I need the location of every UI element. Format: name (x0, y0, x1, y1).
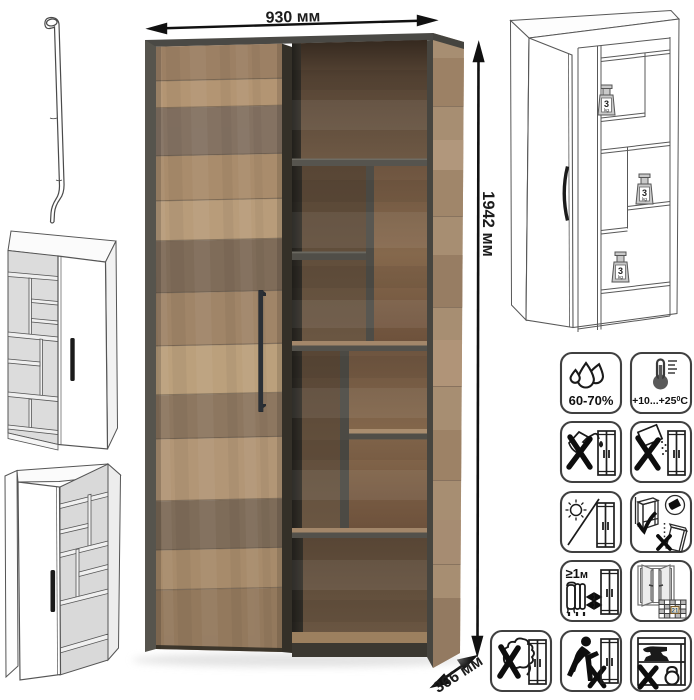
svg-text:60-70%: 60-70% (569, 393, 614, 408)
svg-text:930 мм: 930 мм (265, 8, 320, 27)
svg-text:≥1м: ≥1м (566, 566, 589, 581)
svg-text:1942 мм: 1942 мм (479, 191, 497, 257)
svg-text:kg: kg (642, 197, 647, 202)
svg-text:kg: kg (604, 108, 609, 113)
svg-text:+10...+250C: +10...+250C (632, 395, 688, 407)
svg-text:21: 21 (672, 609, 679, 615)
svg-text:kg: kg (618, 275, 623, 280)
